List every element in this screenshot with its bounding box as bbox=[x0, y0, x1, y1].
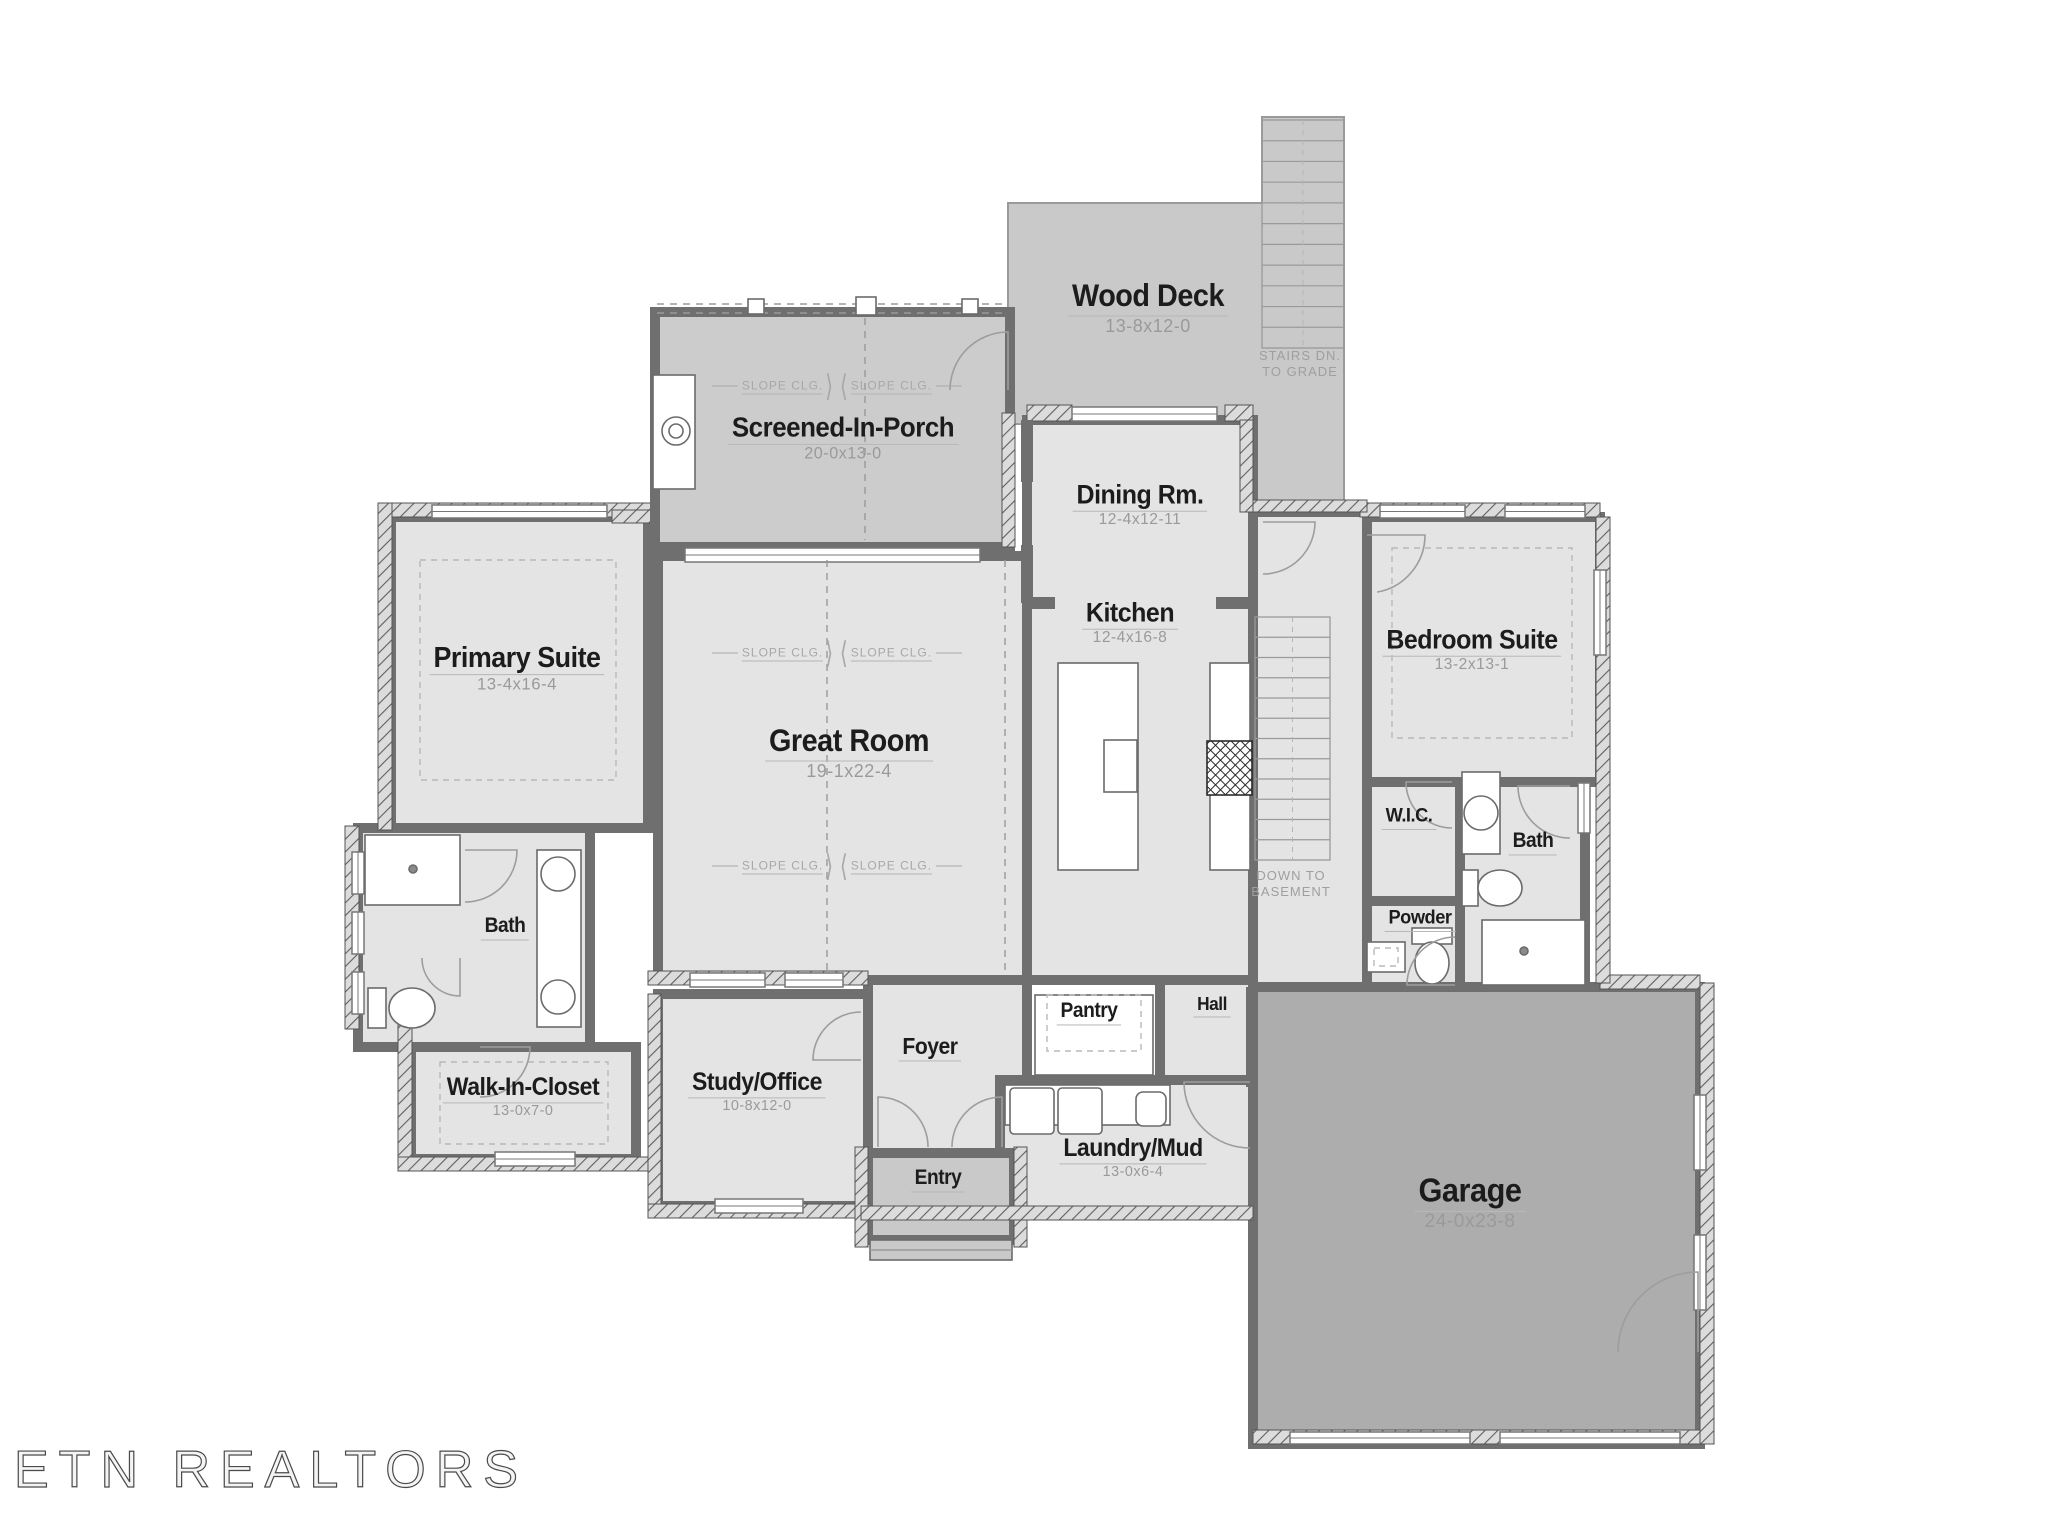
exterior-wall bbox=[1002, 413, 1015, 547]
shower-2-drain bbox=[1520, 947, 1528, 955]
exterior-wall bbox=[378, 503, 392, 830]
washer bbox=[1010, 1088, 1054, 1134]
area-hall bbox=[1160, 980, 1253, 1080]
shower-1-drain bbox=[409, 865, 417, 873]
exterior-wall bbox=[1253, 500, 1367, 512]
exterior-wall bbox=[398, 1025, 412, 1161]
area-screened-porch bbox=[655, 312, 1010, 547]
wall-stub bbox=[1027, 597, 1055, 609]
porch-post bbox=[748, 299, 764, 314]
toilet-bowl bbox=[389, 988, 435, 1028]
porch-post bbox=[962, 299, 978, 314]
toilet-bowl bbox=[1478, 870, 1522, 906]
shower-2 bbox=[1482, 920, 1585, 985]
toilet-bowl bbox=[1415, 942, 1449, 984]
exterior-wall bbox=[1027, 405, 1072, 421]
powder-sink bbox=[1367, 942, 1405, 972]
fireplace-flue-inner bbox=[669, 424, 683, 438]
area-study bbox=[658, 994, 868, 1206]
area-walk-in-closet bbox=[411, 1047, 636, 1159]
exterior-wall bbox=[855, 1147, 868, 1247]
laundry-sink bbox=[1136, 1092, 1166, 1126]
exterior-wall bbox=[1225, 405, 1253, 421]
area-great-room bbox=[658, 556, 1027, 980]
brokerage-watermark: ETN REALTORS bbox=[14, 1440, 528, 1500]
exterior-wall bbox=[861, 1206, 1253, 1220]
area-bedroom-suite bbox=[1367, 517, 1600, 782]
exterior-wall bbox=[1700, 983, 1714, 1444]
area-garage bbox=[1253, 987, 1700, 1444]
area-wic-2 bbox=[1367, 782, 1460, 901]
island-sink bbox=[1104, 740, 1137, 792]
area-primary-suite bbox=[391, 517, 648, 828]
sink bbox=[541, 857, 575, 891]
floor-plan-page: Wood Deck13-8x12-0Screened-In-Porch20-0x… bbox=[0, 0, 2048, 1536]
pantry-shelves bbox=[1035, 995, 1153, 1075]
exterior-wall bbox=[648, 994, 661, 1206]
floor-plan-drawing bbox=[0, 0, 2048, 1536]
toilet-tank bbox=[1462, 870, 1478, 906]
porch-post bbox=[856, 297, 876, 315]
area-hall-connector bbox=[1253, 512, 1367, 987]
exterior-wall bbox=[1600, 975, 1700, 989]
sink bbox=[1464, 796, 1498, 830]
exterior-wall bbox=[1240, 420, 1253, 512]
area-entry bbox=[868, 1153, 1014, 1240]
toilet-tank bbox=[368, 988, 386, 1028]
wall-stub bbox=[1216, 597, 1252, 609]
exterior-wall bbox=[1014, 1147, 1027, 1247]
wall-stub bbox=[1246, 987, 1258, 1087]
wall-stub bbox=[1021, 420, 1033, 482]
wall-stub bbox=[1021, 545, 1033, 603]
range bbox=[1207, 741, 1252, 795]
exterior-wall bbox=[612, 510, 652, 523]
sink bbox=[541, 980, 575, 1014]
dryer bbox=[1058, 1088, 1102, 1134]
